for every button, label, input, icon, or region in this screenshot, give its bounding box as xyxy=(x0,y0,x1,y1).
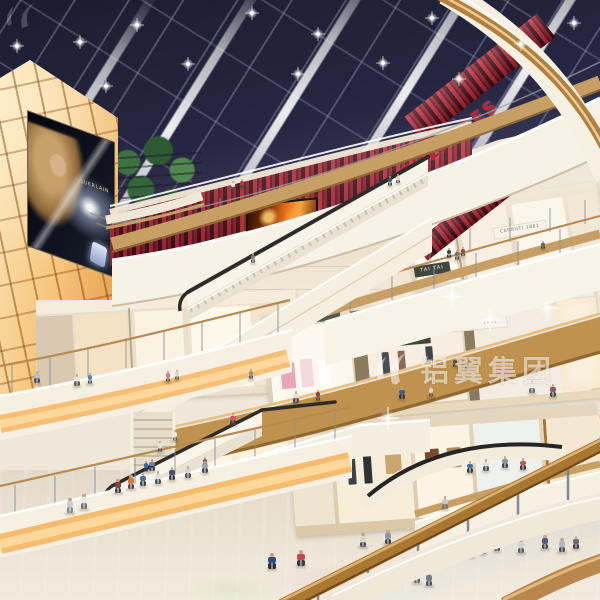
foreground-railings xyxy=(0,0,600,600)
watermark-text: 铝翼集团 xyxy=(420,348,556,390)
mall-atrium-rendering: TAI TAI CERRUTI 1881 TAI TAI CERRUTI 188… xyxy=(0,0,600,600)
watermark-fragment xyxy=(0,0,40,30)
watermark: 铝翼集团 xyxy=(372,348,556,390)
swirl-wing-logo-icon xyxy=(372,349,414,389)
